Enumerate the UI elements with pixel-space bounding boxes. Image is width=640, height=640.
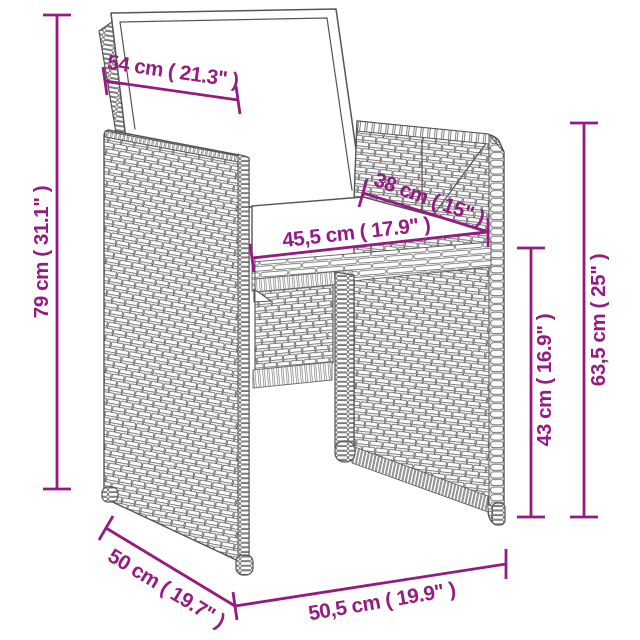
svg-text:43 cm ( 16.9" ): 43 cm ( 16.9" ) (533, 314, 556, 446)
svg-text:63,5 cm ( 25" ): 63,5 cm ( 25" ) (587, 254, 610, 386)
svg-text:79 cm ( 31.1" ): 79 cm ( 31.1" ) (30, 186, 53, 318)
